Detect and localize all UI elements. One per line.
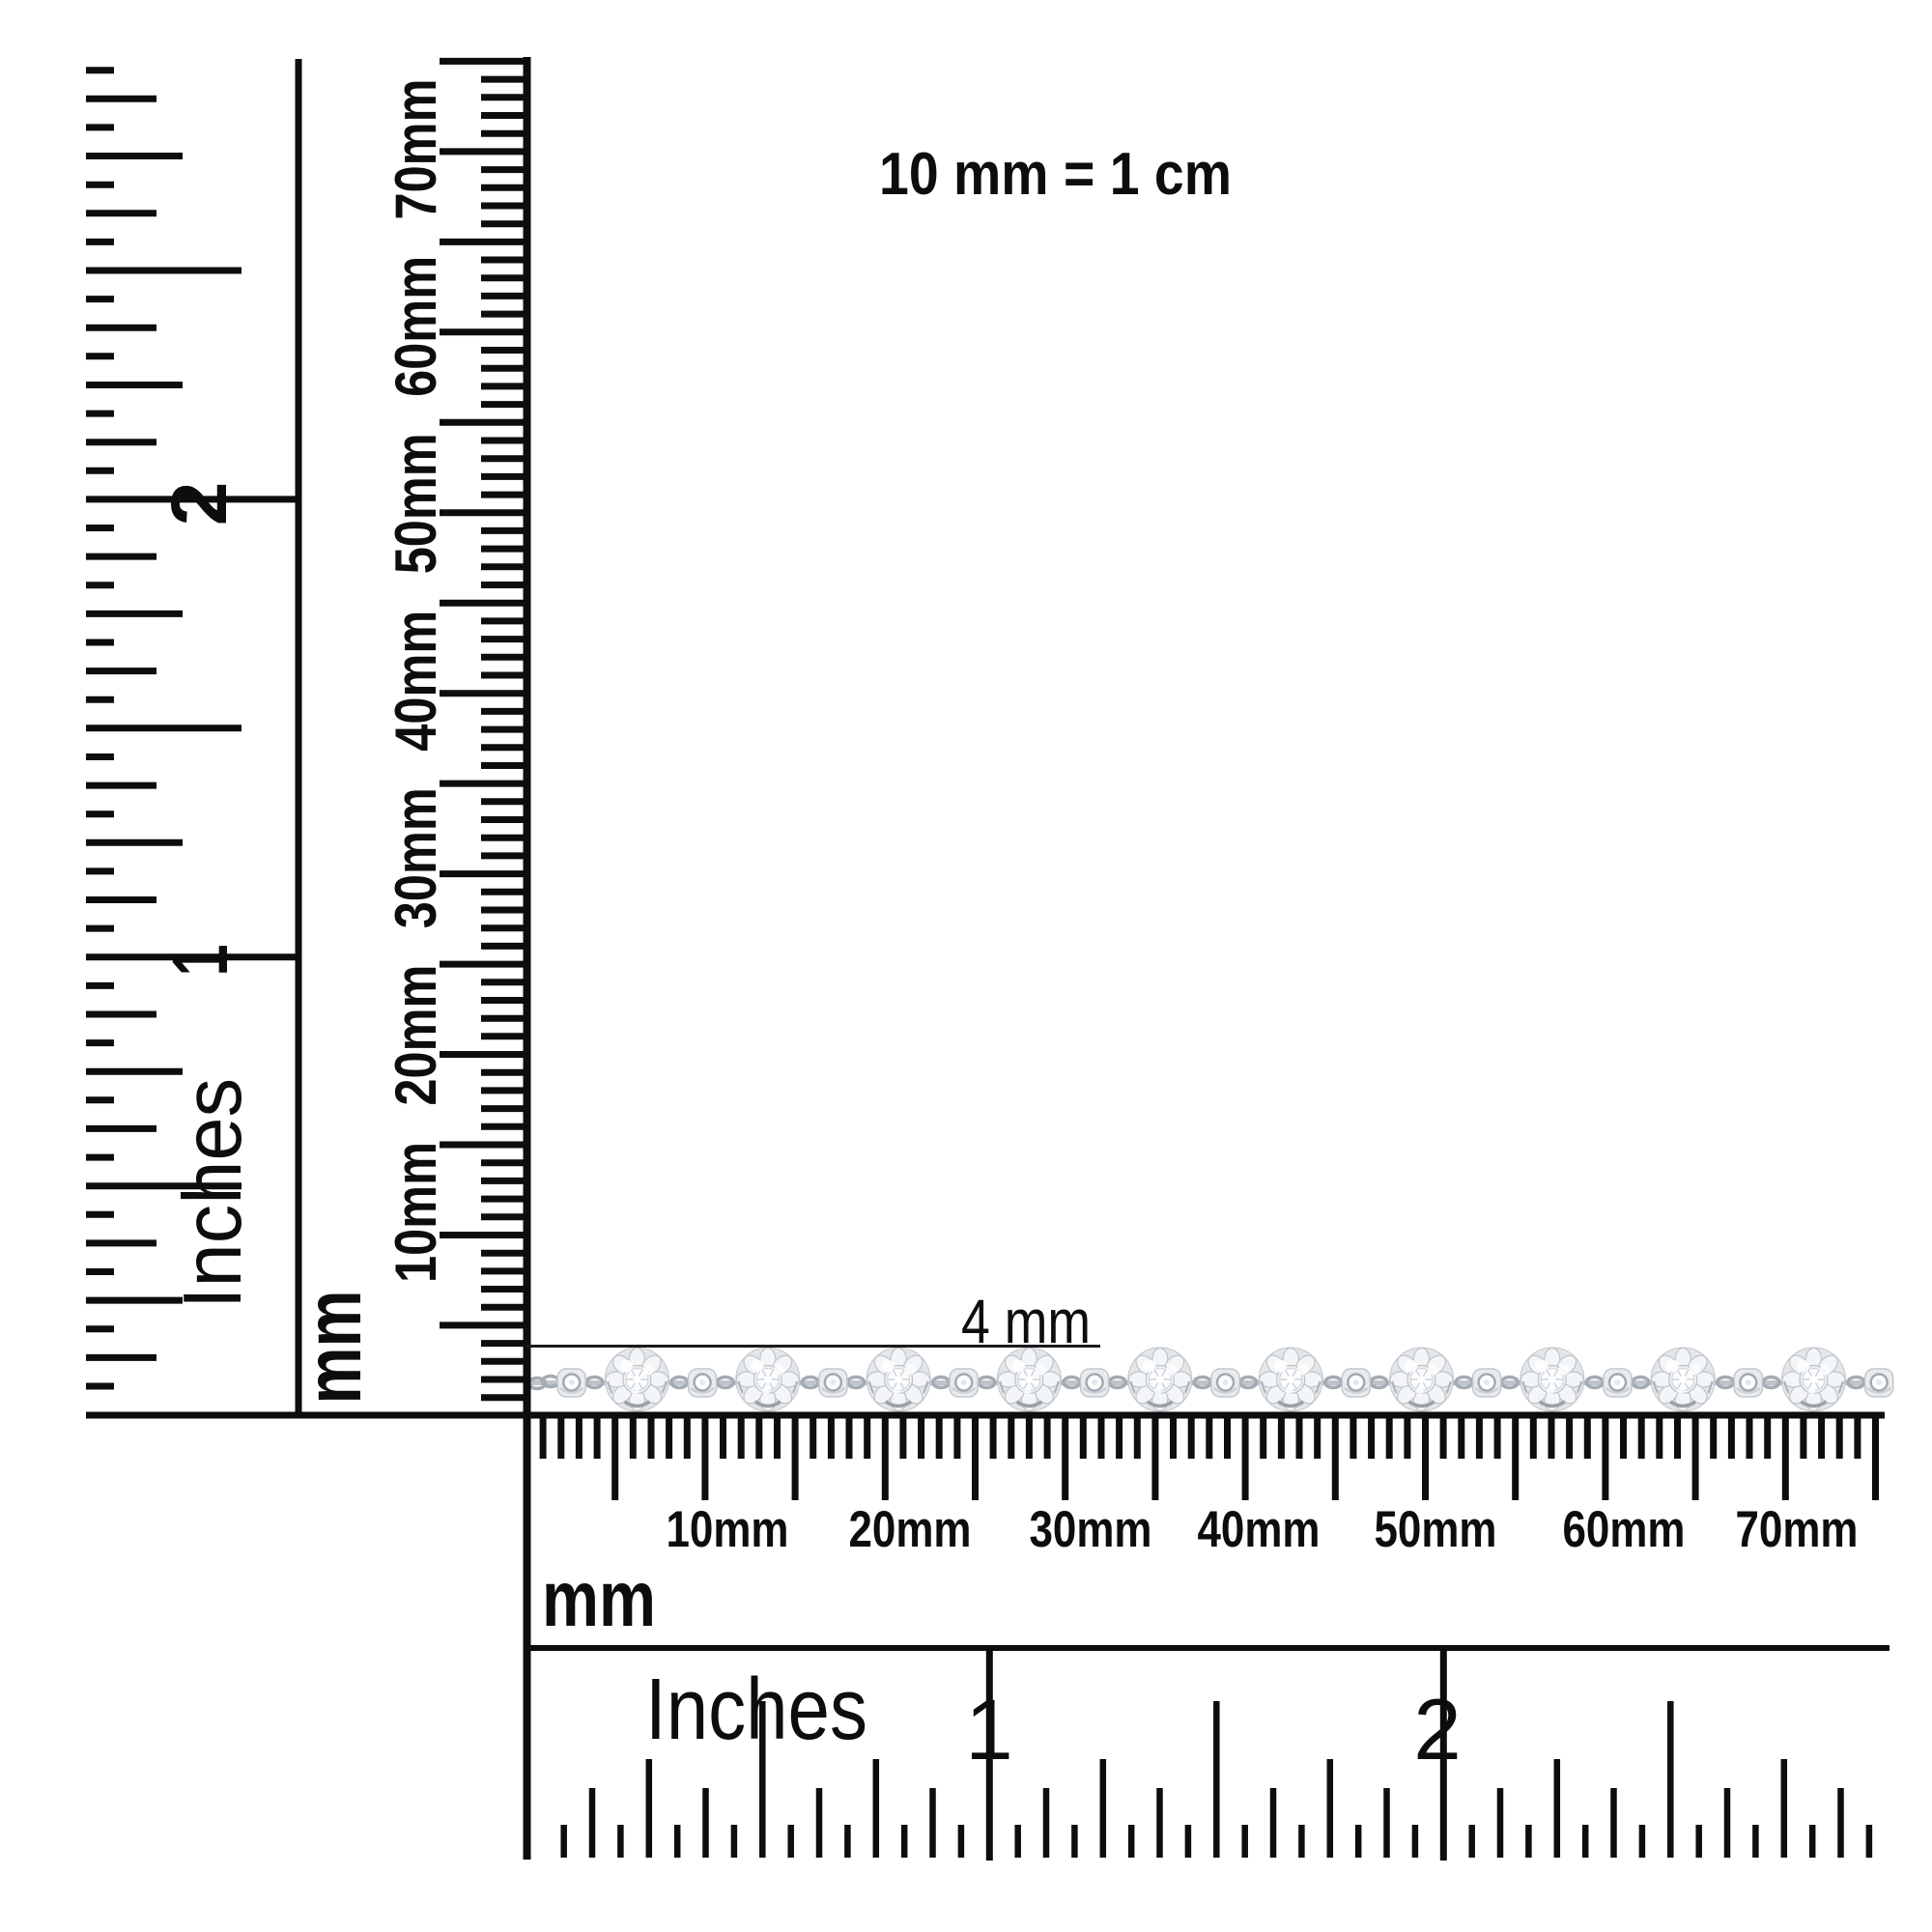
svg-text:10mm: 10mm bbox=[384, 1142, 448, 1283]
svg-text:10mm: 10mm bbox=[667, 1501, 789, 1558]
svg-text:40mm: 40mm bbox=[1198, 1501, 1321, 1558]
svg-text:40mm: 40mm bbox=[384, 611, 448, 752]
svg-text:50mm: 50mm bbox=[1375, 1501, 1497, 1558]
svg-text:mm: mm bbox=[290, 1291, 378, 1405]
svg-text:Inches: Inches bbox=[167, 1078, 259, 1309]
svg-text:60mm: 60mm bbox=[1563, 1501, 1686, 1558]
svg-text:10 mm = 1 cm: 10 mm = 1 cm bbox=[879, 141, 1232, 208]
svg-text:1: 1 bbox=[156, 945, 244, 977]
svg-text:30mm: 30mm bbox=[384, 787, 448, 928]
svg-text:1: 1 bbox=[965, 1681, 1013, 1777]
svg-text:70mm: 70mm bbox=[1736, 1501, 1859, 1558]
svg-text:2: 2 bbox=[1413, 1681, 1462, 1777]
svg-text:50mm: 50mm bbox=[384, 433, 448, 574]
svg-text:70mm: 70mm bbox=[384, 79, 448, 220]
svg-text:20mm: 20mm bbox=[384, 965, 448, 1106]
svg-text:30mm: 30mm bbox=[1030, 1501, 1152, 1558]
svg-text:2: 2 bbox=[156, 482, 243, 526]
svg-text:Inches: Inches bbox=[645, 1662, 867, 1758]
svg-text:4 mm: 4 mm bbox=[961, 1287, 1091, 1356]
svg-text:60mm: 60mm bbox=[384, 256, 448, 397]
svg-text:20mm: 20mm bbox=[849, 1501, 972, 1558]
svg-text:mm: mm bbox=[542, 1555, 656, 1643]
